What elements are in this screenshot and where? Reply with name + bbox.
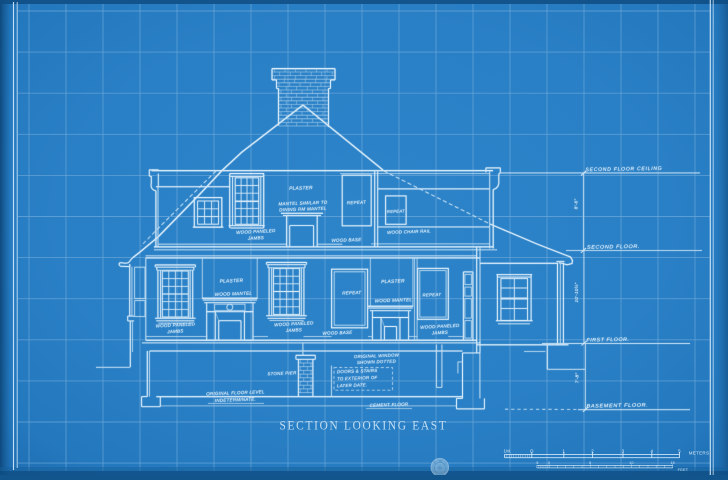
svg-text:PLASTER: PLASTER	[289, 185, 313, 192]
svg-text:JAMBS: JAMBS	[247, 235, 265, 241]
svg-text:JAMBS: JAMBS	[166, 328, 184, 334]
svg-text:10'-10½": 10'-10½"	[573, 282, 579, 302]
svg-text:4: 4	[650, 448, 653, 453]
svg-text:JAMBS: JAMBS	[431, 330, 449, 336]
svg-text:PLASTER: PLASTER	[220, 278, 244, 285]
svg-text:JAMBS: JAMBS	[285, 327, 303, 333]
svg-text:BASEMENT FLOOR.: BASEMENT FLOOR.	[586, 403, 648, 410]
svg-text:2: 2	[591, 448, 594, 453]
svg-text:O: O	[530, 448, 534, 453]
svg-text:METERS: METERS	[689, 450, 710, 455]
svg-text:15: 15	[670, 461, 675, 465]
svg-text:FEET: FEET	[678, 468, 689, 472]
svg-text:REPEAT: REPEAT	[422, 292, 441, 298]
svg-text:REPEAT: REPEAT	[347, 200, 367, 206]
svg-text:10: 10	[629, 461, 634, 465]
svg-text:SECOND FLOOR.: SECOND FLOOR.	[587, 244, 640, 251]
svg-text:REPEAT: REPEAT	[342, 290, 362, 296]
svg-text:0: 0	[548, 461, 550, 465]
svg-text:LATER DATE.: LATER DATE.	[337, 382, 368, 388]
svg-text:3: 3	[622, 448, 625, 453]
svg-text:STONE PIER: STONE PIER	[267, 370, 297, 376]
svg-text:7'-8": 7'-8"	[575, 373, 580, 384]
svg-text:1M.: 1M.	[503, 448, 511, 453]
svg-text:5: 5	[678, 448, 681, 453]
svg-text:1: 1	[562, 448, 565, 453]
svg-text:FIRST FLOOR.: FIRST FLOOR.	[586, 337, 629, 344]
svg-text:REPEAT: REPEAT	[387, 208, 405, 214]
svg-text:5: 5	[536, 461, 538, 465]
svg-text:5: 5	[589, 461, 591, 465]
svg-text:WOOD BASE: WOOD BASE	[322, 330, 353, 336]
svg-text:8'-6": 8'-6"	[574, 199, 579, 210]
svg-text:SECTION LOOKING EAST: SECTION LOOKING EAST	[280, 419, 448, 433]
svg-text:PLASTER: PLASTER	[381, 278, 405, 285]
